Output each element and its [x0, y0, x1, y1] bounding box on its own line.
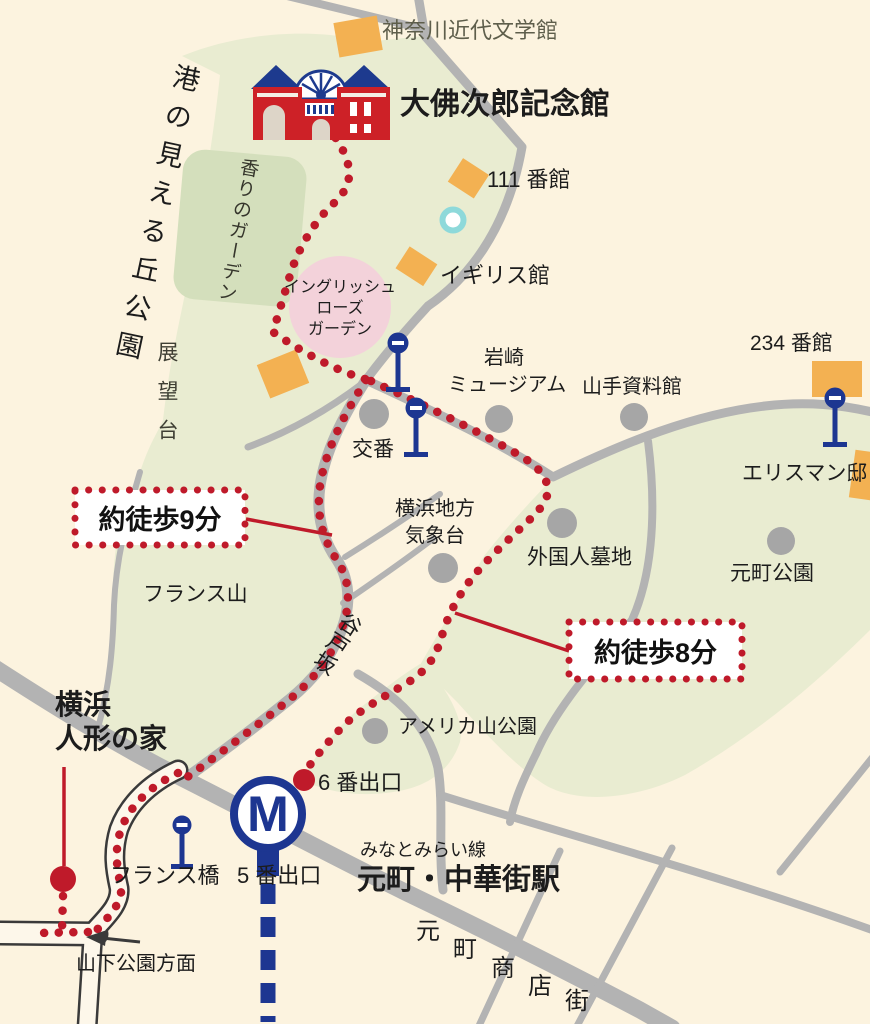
pedestrian-ways — [0, 770, 178, 1024]
signal-icon-rose-garden — [386, 333, 410, 393]
park-areas — [98, 34, 870, 797]
label-exit-6: 6 番出口 — [318, 770, 402, 795]
label-weather-line2: 気象台 — [374, 523, 496, 550]
yamate-museum-dot — [620, 403, 648, 431]
route-map: 神奈川近代文学館 大佛次郎記念館 港の見える丘公園 展望台 香りのガーデン 11… — [0, 0, 870, 1024]
label-exit-5: 5 番出口 — [237, 863, 321, 888]
doll-museum-dot — [50, 866, 76, 892]
motomachi-park-dot — [767, 527, 795, 555]
label-weather-observatory: 横浜地方 気象台 — [374, 496, 496, 550]
label-rose-garden-line2: ローズ — [284, 298, 396, 319]
label-shopping-char-3: 商 — [491, 955, 515, 983]
cemetery-dot — [547, 508, 577, 538]
label-doll-museum: 横浜 人形の家 — [55, 688, 167, 756]
label-yamate-museum: 山手資料館 — [582, 376, 682, 399]
pond-icon — [443, 210, 464, 231]
koban-dot — [359, 399, 389, 429]
label-weather-line1: 横浜地方 — [374, 496, 496, 523]
label-france-bridge: フランス橋 — [110, 863, 220, 888]
label-yamashita-direction: 山下公園方面 — [76, 953, 196, 976]
label-minatomirai-line: みなとみらい線 — [360, 840, 486, 861]
label-france-hill: フランス山 — [143, 583, 248, 607]
label-americayama-park: アメリカ山公園 — [398, 716, 537, 739]
walk-9min-badge: 約徒歩9分 — [75, 490, 245, 545]
label-shopping-char-2: 町 — [453, 936, 477, 964]
label-station-name: 元町・中華街駅 — [357, 864, 560, 897]
signal-icon-koban — [404, 398, 428, 458]
label-england-house: イギリス館 — [440, 263, 550, 288]
label-doll-line1: 横浜 — [55, 688, 167, 722]
label-shopping-char-1: 元 — [416, 918, 440, 946]
label-doll-line2: 人形の家 — [55, 722, 167, 756]
americayama-dot — [362, 718, 388, 744]
label-rose-garden-line1: イングリッシュ — [284, 277, 396, 298]
label-rose-garden: イングリッシュ ローズ ガーデン — [284, 277, 396, 340]
metro-m-mark: M — [246, 790, 290, 838]
road-motomachi-cross3 — [780, 758, 870, 872]
signal-icon-france-bridge — [171, 816, 193, 870]
label-foreigners-cemetery: 外国人墓地 — [527, 546, 632, 570]
label-motomachi-park: 元町公園 — [730, 562, 814, 586]
label-iwasaki-line2: ミュージアム — [448, 372, 560, 399]
route-doll-link — [62, 896, 63, 931]
exit6-dot — [293, 769, 315, 791]
label-ehrisman-house: エリスマン邸 — [742, 462, 867, 486]
label-house-111: 111 番館 — [487, 167, 571, 192]
label-house-234: 234 番館 — [750, 332, 833, 356]
label-iwasaki-line1: 岩崎 — [448, 345, 560, 372]
label-observation-deck: 展望台 — [156, 341, 177, 458]
road-station-parallel — [440, 795, 870, 930]
walk-8min-badge: 約徒歩8分 — [569, 622, 742, 679]
label-literature-museum: 神奈川近代文学館 — [382, 18, 558, 43]
label-koban: 交番 — [352, 438, 394, 462]
iwasaki-museum-dot — [485, 405, 513, 433]
label-rose-garden-line3: ガーデン — [284, 319, 396, 340]
label-shopping-char-5: 街 — [565, 988, 589, 1016]
memorial-hall-icon — [251, 65, 390, 140]
label-memorial-hall: 大佛次郎記念館 — [400, 88, 610, 123]
weather-observatory-dot — [428, 553, 458, 583]
label-iwasaki-museum: 岩崎 ミュージアム — [448, 345, 560, 399]
label-shopping-char-4: 店 — [528, 973, 552, 1001]
